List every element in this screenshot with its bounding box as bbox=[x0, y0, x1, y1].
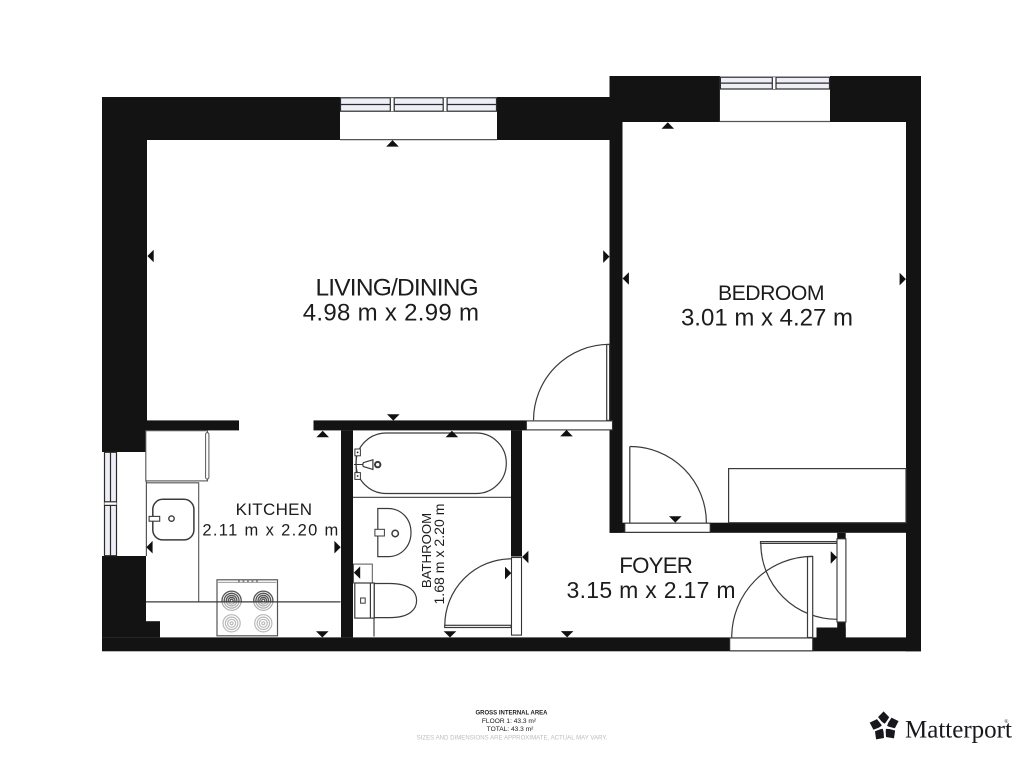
svg-text:LIVING/DINING: LIVING/DINING bbox=[315, 275, 478, 302]
svg-text:®: ® bbox=[1004, 718, 1008, 725]
svg-text:3.01 m x 4.27 m: 3.01 m x 4.27 m bbox=[681, 305, 853, 332]
svg-text:KITCHEN: KITCHEN bbox=[236, 500, 313, 519]
svg-text:Matterport: Matterport bbox=[905, 716, 1012, 743]
svg-text:GROSS INTERNAL AREA: GROSS INTERNAL AREA bbox=[475, 710, 548, 716]
svg-text:1.68 m x 2.20 m: 1.68 m x 2.20 m bbox=[431, 503, 447, 604]
svg-text:FLOOR 1: 43.3 m²: FLOOR 1: 43.3 m² bbox=[482, 718, 537, 725]
svg-text:TOTAL: 43.3 m²: TOTAL: 43.3 m² bbox=[487, 726, 534, 733]
svg-text:SIZES AND DIMENSIONS ARE APPRO: SIZES AND DIMENSIONS ARE APPROXIMATE, AC… bbox=[417, 734, 608, 741]
svg-text:4.98 m x 2.99 m: 4.98 m x 2.99 m bbox=[303, 300, 480, 327]
svg-text:3.15 m x 2.17 m: 3.15 m x 2.17 m bbox=[566, 577, 735, 603]
svg-text:2.11 m x 2.20 m: 2.11 m x 2.20 m bbox=[202, 521, 339, 539]
svg-text:FOYER: FOYER bbox=[619, 553, 693, 578]
svg-text:BEDROOM: BEDROOM bbox=[718, 282, 824, 305]
